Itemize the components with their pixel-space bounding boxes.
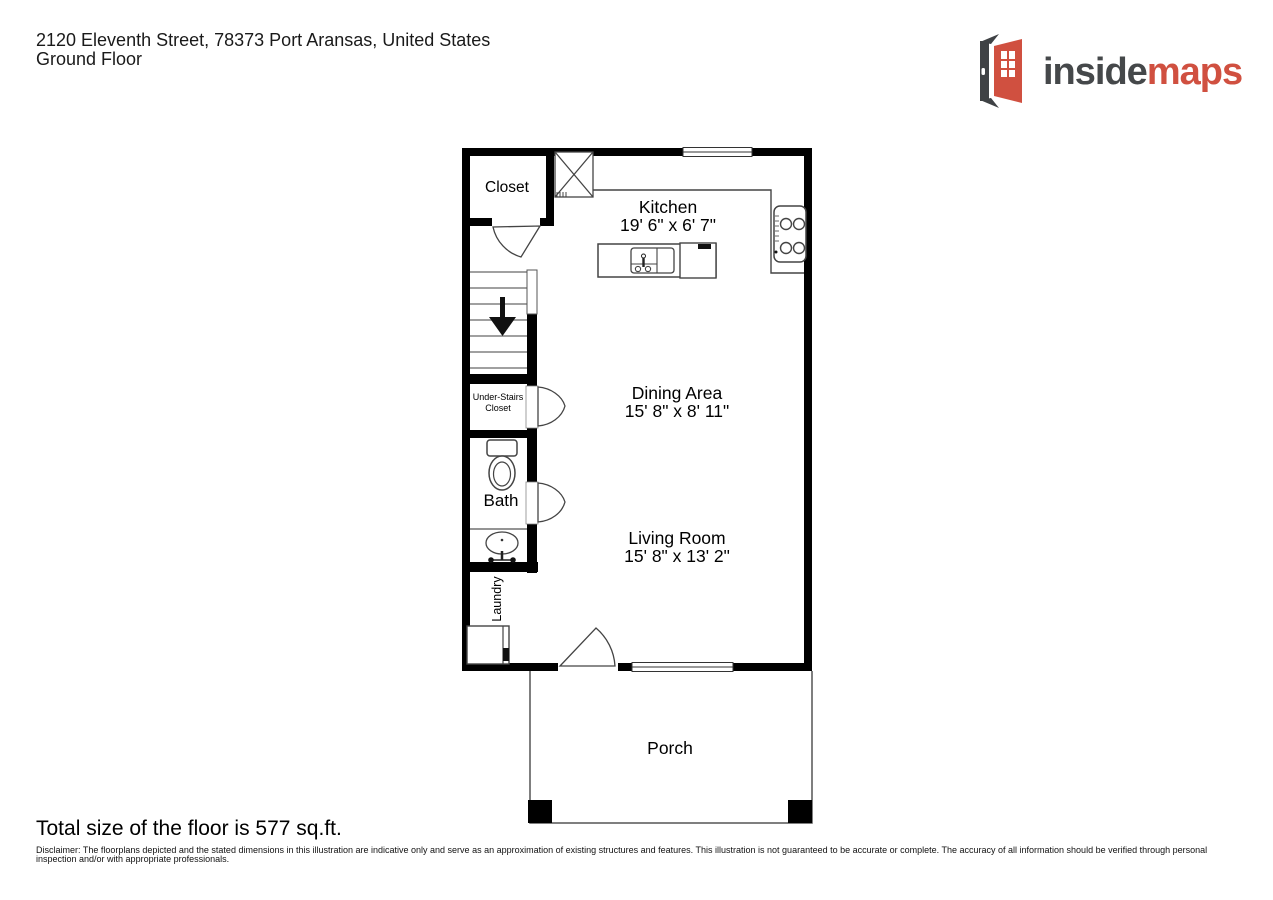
total-size-text: Total size of the floor is 577 sq.ft. [36,817,342,841]
understairs-line1: Under-Stairs [473,392,524,403]
bath-door-opening [526,482,538,524]
dishwasher-icon [680,243,716,278]
toilet-icon [487,440,517,490]
stair-rail [527,270,537,314]
living-name: Living Room [624,529,730,547]
dining-name: Dining Area [625,384,729,402]
stairs-down-arrow-icon [489,297,516,336]
bathroom-sink-icon [486,532,518,563]
understairs-line2: Closet [473,403,524,414]
kitchen-name: Kitchen [620,198,716,216]
living-dims: 15' 8" x 13' 2" [624,547,730,565]
floorplan-page: 2120 Eleventh Street, 78373 Port Aransas… [0,0,1273,900]
kitchen-label: Kitchen 19' 6" x 6' 7" [620,198,716,234]
door-swing-icon [493,226,540,257]
porch-label: Porch [647,739,693,757]
dining-dims: 15' 8" x 8' 11" [625,402,729,420]
door-swing-icon [538,387,565,426]
porch-post [788,800,812,823]
dining-label: Dining Area 15' 8" x 8' 11" [625,384,729,420]
understairs-label: Under-Stairs Closet [473,392,524,413]
understairs-door-opening [526,386,538,428]
disclaimer-text: Disclaimer: The floorplans depicted and … [36,846,1209,863]
living-label: Living Room 15' 8" x 13' 2" [624,529,730,565]
door-swing-icon [560,628,615,666]
closet-door-opening [492,217,540,227]
closet-label: Closet [485,180,529,196]
floorplan-canvas [0,0,1273,900]
kitchen-island-icon [598,243,716,278]
kitchen-sink-icon [631,248,674,273]
water-heater-icon [555,152,593,197]
washer-icon [467,626,509,664]
bath-label: Bath [484,492,519,510]
kitchen-dims: 19' 6" x 6' 7" [620,216,716,234]
laundry-label: Laundry [488,576,506,621]
door-swing-icon [538,483,565,522]
stove-icon [774,206,806,262]
porch-post [528,800,552,823]
window [683,148,752,157]
window [632,663,733,672]
